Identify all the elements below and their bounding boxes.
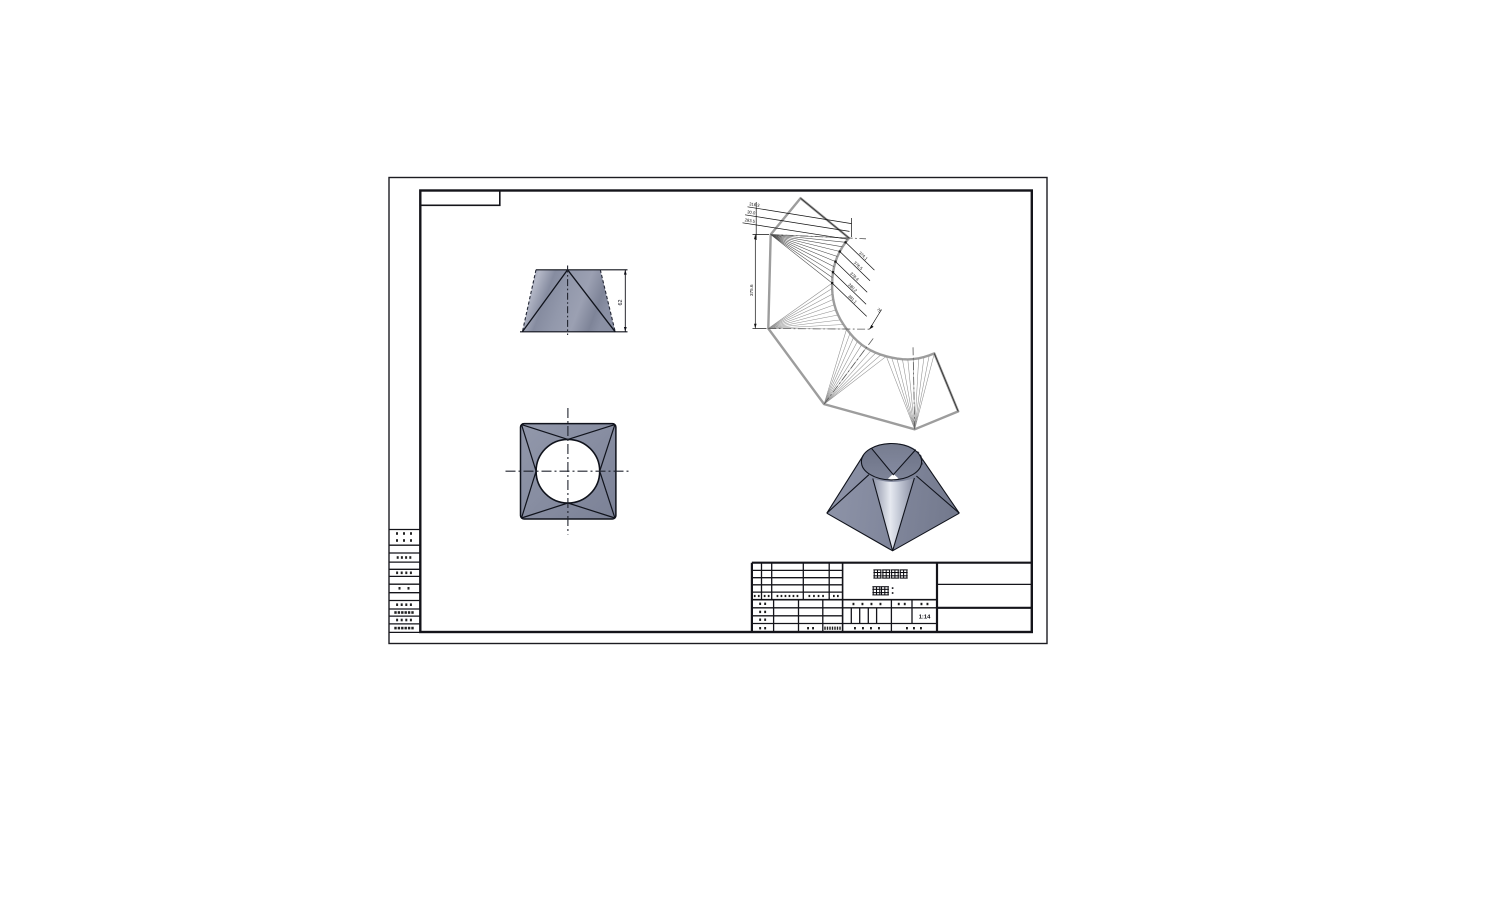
svg-text:283.5: 283.5 — [744, 217, 756, 224]
svg-text:75: 75 — [876, 307, 883, 314]
svg-text:316.3: 316.3 — [749, 201, 761, 208]
svg-text:375.6: 375.6 — [749, 284, 754, 296]
svg-text:30.0: 30.0 — [747, 209, 756, 215]
svg-text:62: 62 — [618, 300, 624, 306]
svg-text:1:14: 1:14 — [919, 615, 931, 621]
